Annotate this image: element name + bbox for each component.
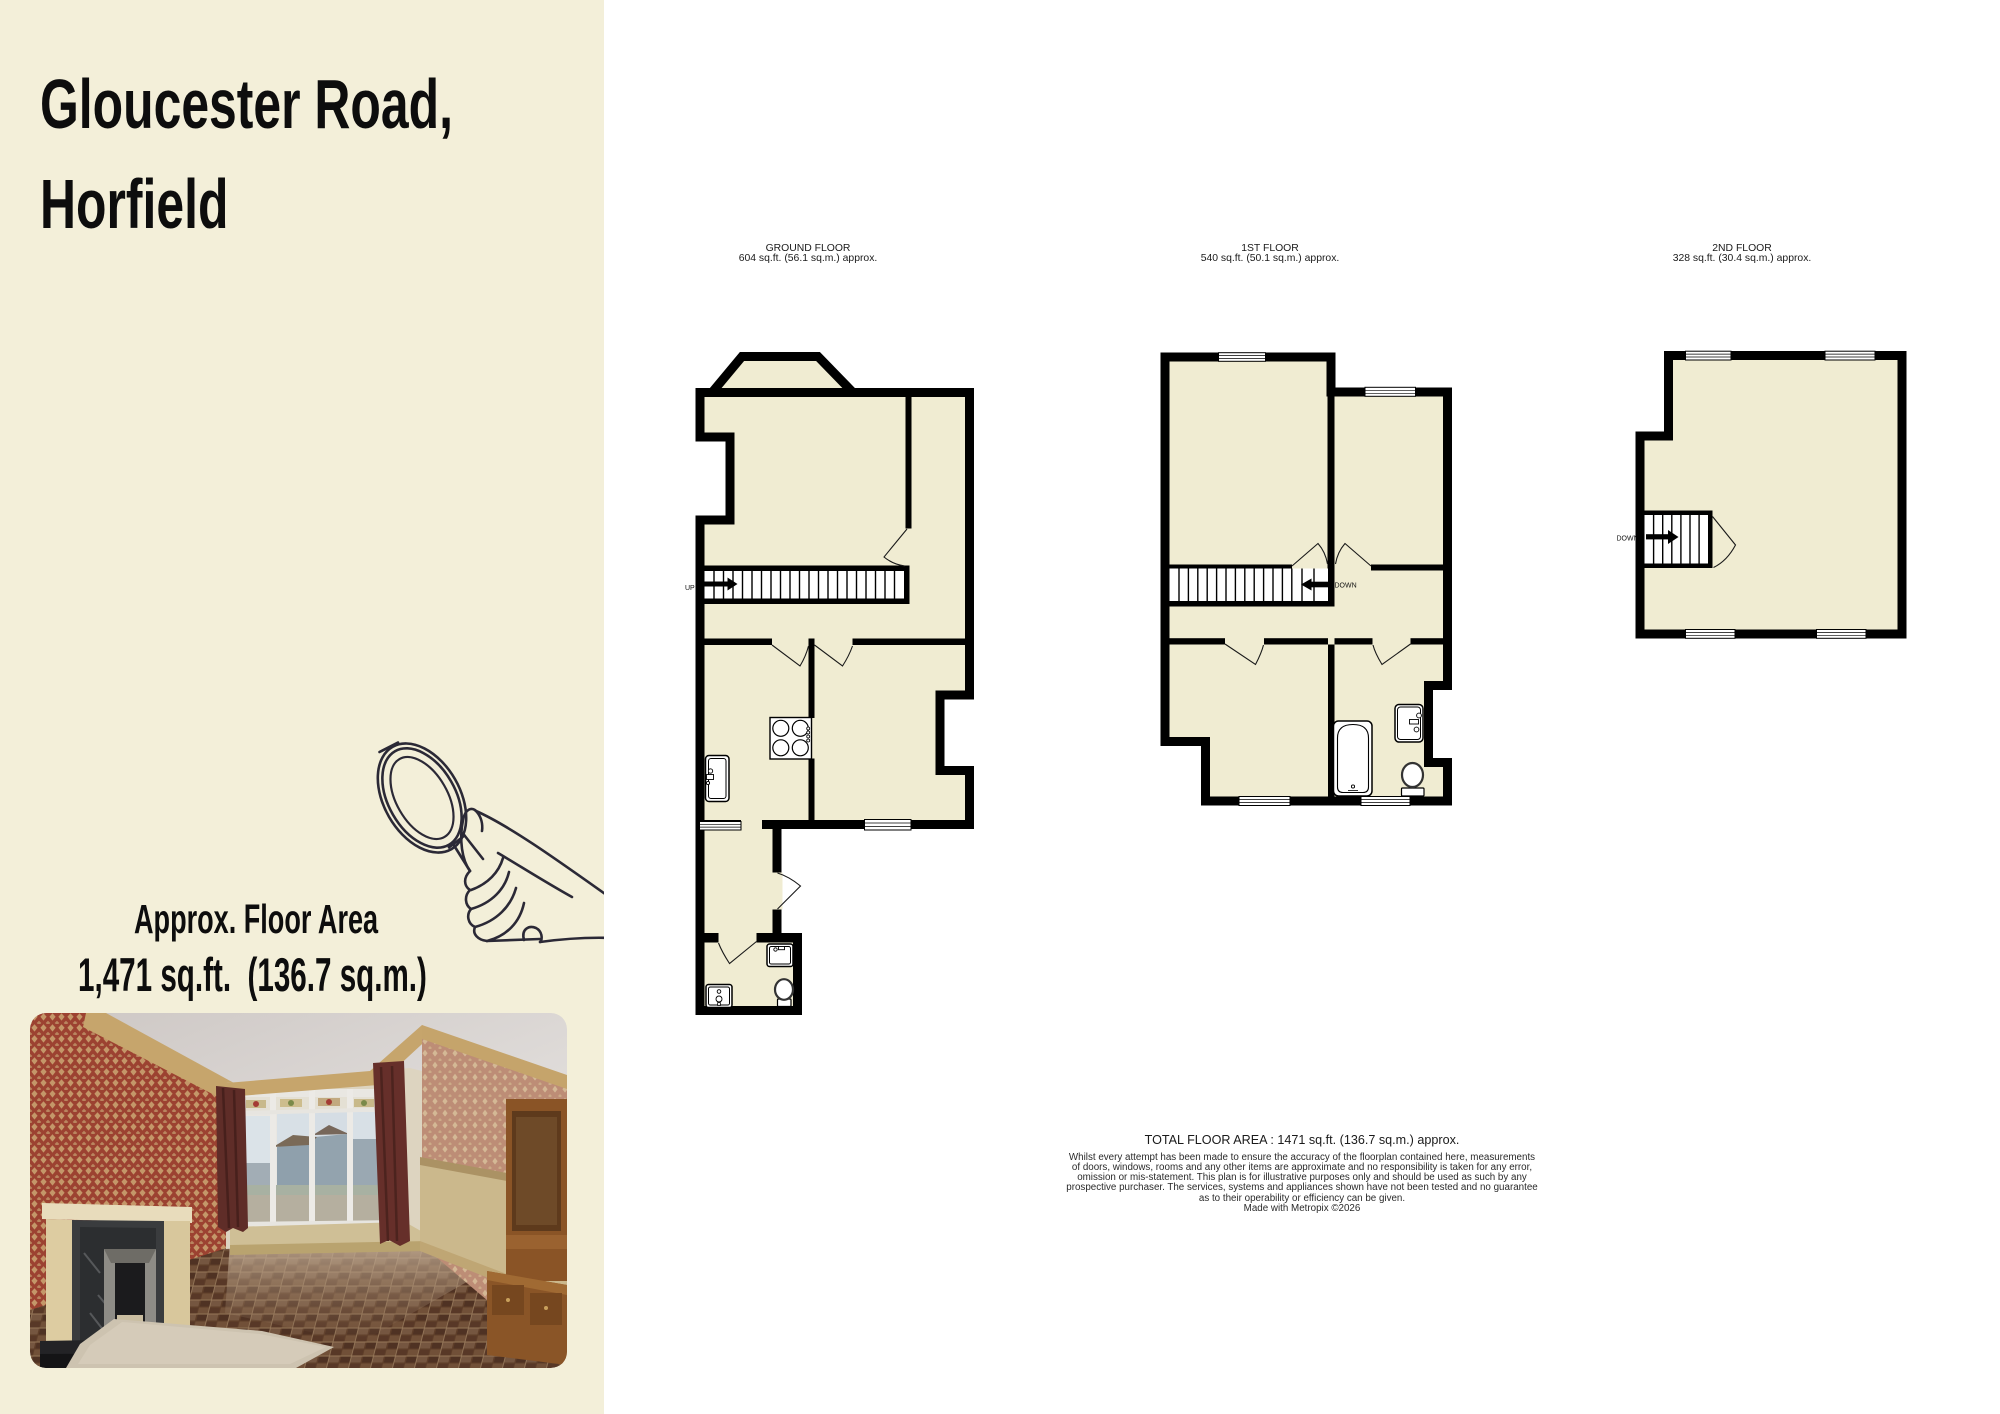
svg-text:UP: UP — [685, 585, 695, 592]
svg-text:DOWN: DOWN — [1617, 536, 1639, 543]
svg-text:DOWN: DOWN — [1335, 583, 1357, 590]
